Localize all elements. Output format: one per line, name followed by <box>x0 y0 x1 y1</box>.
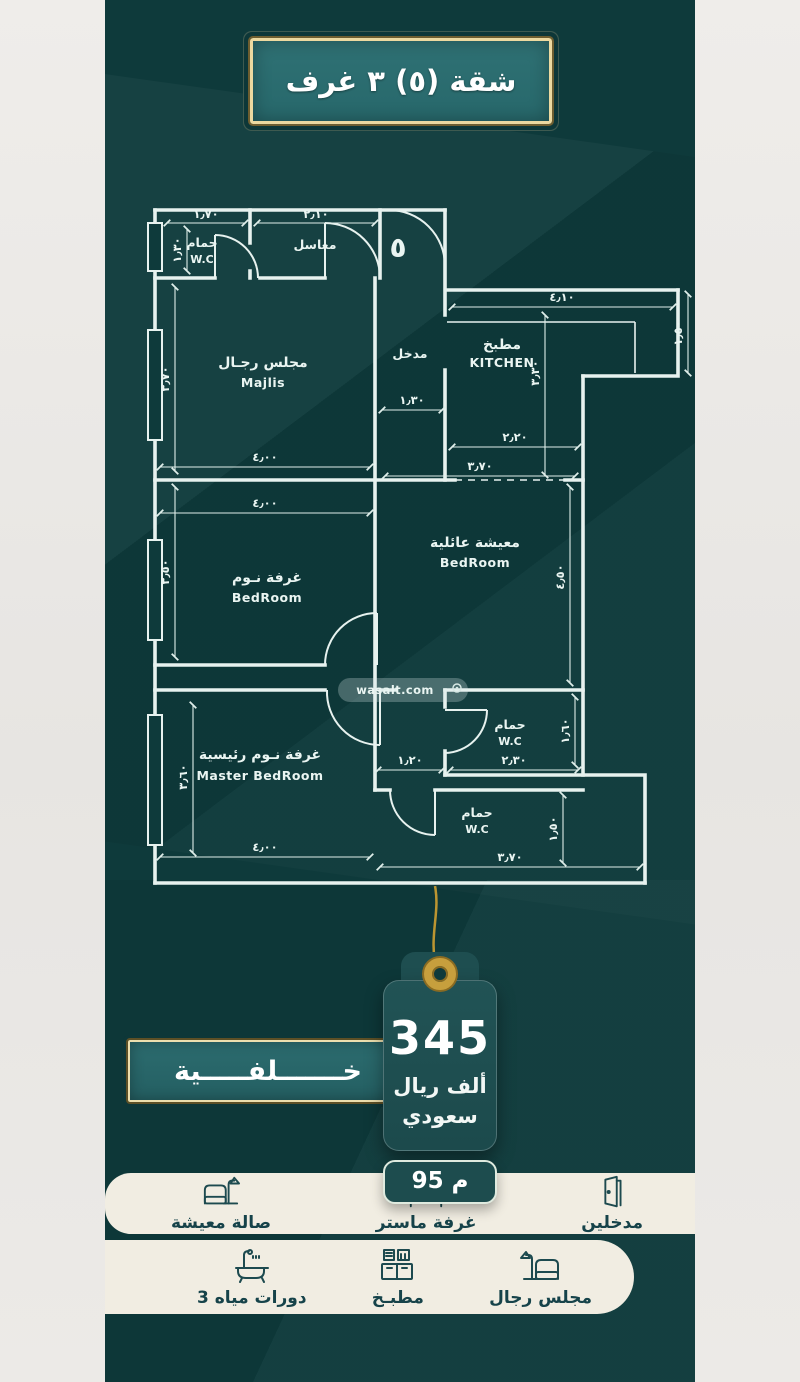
watermark: wasalt.com <box>338 678 468 702</box>
dim-family-height: ٤٫٥٠ <box>553 564 567 589</box>
tag-body: 345 ألف ريال سعودي <box>383 980 497 1151</box>
dim-bath-width: ١٫٧٠ <box>193 207 218 221</box>
unit-number: ٥ <box>389 231 406 264</box>
bathtub-icon <box>229 1247 275 1287</box>
dim-wc-bottom-width: ٣٫٧٠ <box>497 850 522 864</box>
watermark-text: wasalt.com <box>356 683 434 697</box>
amenity-label: غرفة ماستر <box>376 1213 477 1233</box>
dim-kitchen-bottom: ٢٫٢٠ <box>502 430 527 444</box>
dim-majlis-width: ٤٫٠٠ <box>252 450 277 464</box>
flyer-page: شقة (٥) ٣ غرف <box>0 0 800 1382</box>
tag-ring-icon <box>424 958 456 990</box>
room-label-bedroom-en: BedRoom <box>232 590 302 605</box>
floor-plan: ١٫٧٠ ١٫٣٠ ٢٫١٠ ٣٫٧٠ ٤٫٠٠ ١٫٣٠ ٤٫١٠ ١٫٥٠ … <box>145 195 695 900</box>
amenity-label: مطبـخ <box>372 1288 424 1308</box>
dim-majlis-height: ٣٫٧٠ <box>158 366 172 391</box>
room-label-bedroom-ar: غرفة نـوم <box>232 570 302 586</box>
dim-master-width: ٤٫٠٠ <box>252 840 277 854</box>
amenities-row-2: مجلس رجال مطبـخ 3 دورات مياه <box>105 1240 634 1314</box>
room-label-wc-bottom-en: W.C <box>465 823 489 836</box>
room-label-wc-mid-ar: حمام <box>494 717 525 733</box>
page-title: شقة (٥) ٣ غرف <box>286 64 517 98</box>
dimension-labels: ١٫٧٠ ١٫٣٠ ٢٫١٠ ٣٫٧٠ ٤٫٠٠ ١٫٣٠ ٤٫١٠ ١٫٥٠ … <box>158 207 685 864</box>
room-label-kitchen-en: KITCHEN <box>470 355 535 370</box>
dim-entry-width: ١٫٣٠ <box>399 393 424 407</box>
room-label-master-ar: غرفة نـوم رئيسية <box>199 747 321 763</box>
room-label-wc-bottom-ar: حمام <box>461 805 492 821</box>
price-unit-line2: سعودي <box>388 1101 492 1131</box>
dim-family-width: ٣٫٧٠ <box>467 459 492 473</box>
rear-banner: خـــــــلفـــــية <box>128 1040 408 1102</box>
amenity-label: صالة معيشة <box>171 1213 271 1233</box>
room-label-entry: مدخل <box>392 346 427 361</box>
dim-bedroom-width: ٤٫٠٠ <box>252 496 277 510</box>
amenity-entrances: مدخلين <box>581 1174 643 1233</box>
room-label-sinks: مغاسل <box>294 237 337 252</box>
amenity-majlis: مجلس رجال <box>489 1247 592 1308</box>
dim-bedroom-height: ٣٫٥٠ <box>158 559 172 584</box>
title-banner: شقة (٥) ٣ غرف <box>250 38 552 124</box>
rear-banner-label: خـــــــلفـــــية <box>174 1056 362 1087</box>
dim-kitchen-width: ٤٫١٠ <box>549 290 574 304</box>
room-label-kitchen-ar: مطبخ <box>483 337 521 353</box>
dim-master-height: ٣٫٦٠ <box>176 764 190 789</box>
sofa-lamp-icon <box>198 1174 244 1212</box>
door-icon <box>589 1174 635 1212</box>
dim-bath-height: ١٫٣٠ <box>170 237 184 262</box>
dim-sinks-width: ٢٫١٠ <box>303 207 328 221</box>
dim-wc-mid-width: ٢٫٣٠ <box>501 753 526 767</box>
dim-hall-width: ١٫٢٠ <box>397 753 422 767</box>
sofa-lamp-icon <box>518 1247 564 1287</box>
price-unit: ألف ريال سعودي <box>388 1071 492 1132</box>
room-label-family-ar: معيشة عائلية <box>430 535 520 551</box>
room-label-bath-top-ar: حمام <box>186 235 217 251</box>
room-label-majlis-ar: مجلس رجـال <box>218 355 307 371</box>
room-label-bath-top-en: W.C <box>190 253 214 266</box>
room-label-wc-mid-en: W.C <box>498 735 522 748</box>
kitchen-icon <box>375 1247 421 1287</box>
room-label-master-en: Master BedRoom <box>196 768 323 783</box>
amenity-label: مجلس رجال <box>489 1288 592 1308</box>
price-value: 345 <box>388 1015 492 1061</box>
dim-kitchen-side: ١٫٥٠ <box>671 320 685 345</box>
dim-wc-mid-height: ١٫٦٠ <box>558 718 572 743</box>
amenity-living-hall: صالة معيشة <box>171 1174 271 1233</box>
room-label-majlis-en: Majlis <box>241 375 285 390</box>
area-badge: 95 م <box>383 1160 497 1204</box>
amenity-label: 3 دورات مياه <box>197 1288 307 1308</box>
dim-wc-bottom-height: ١٫٥٠ <box>546 816 560 841</box>
price-unit-line1: ألف ريال <box>388 1071 492 1101</box>
amenity-bathrooms: 3 دورات مياه <box>197 1247 307 1308</box>
room-label-family-en: BedRoom <box>440 555 510 570</box>
price-tag: 345 ألف ريال سعودي 95 م <box>383 952 497 1204</box>
amenity-kitchen: مطبـخ <box>372 1247 424 1308</box>
amenity-label: مدخلين <box>581 1213 643 1233</box>
